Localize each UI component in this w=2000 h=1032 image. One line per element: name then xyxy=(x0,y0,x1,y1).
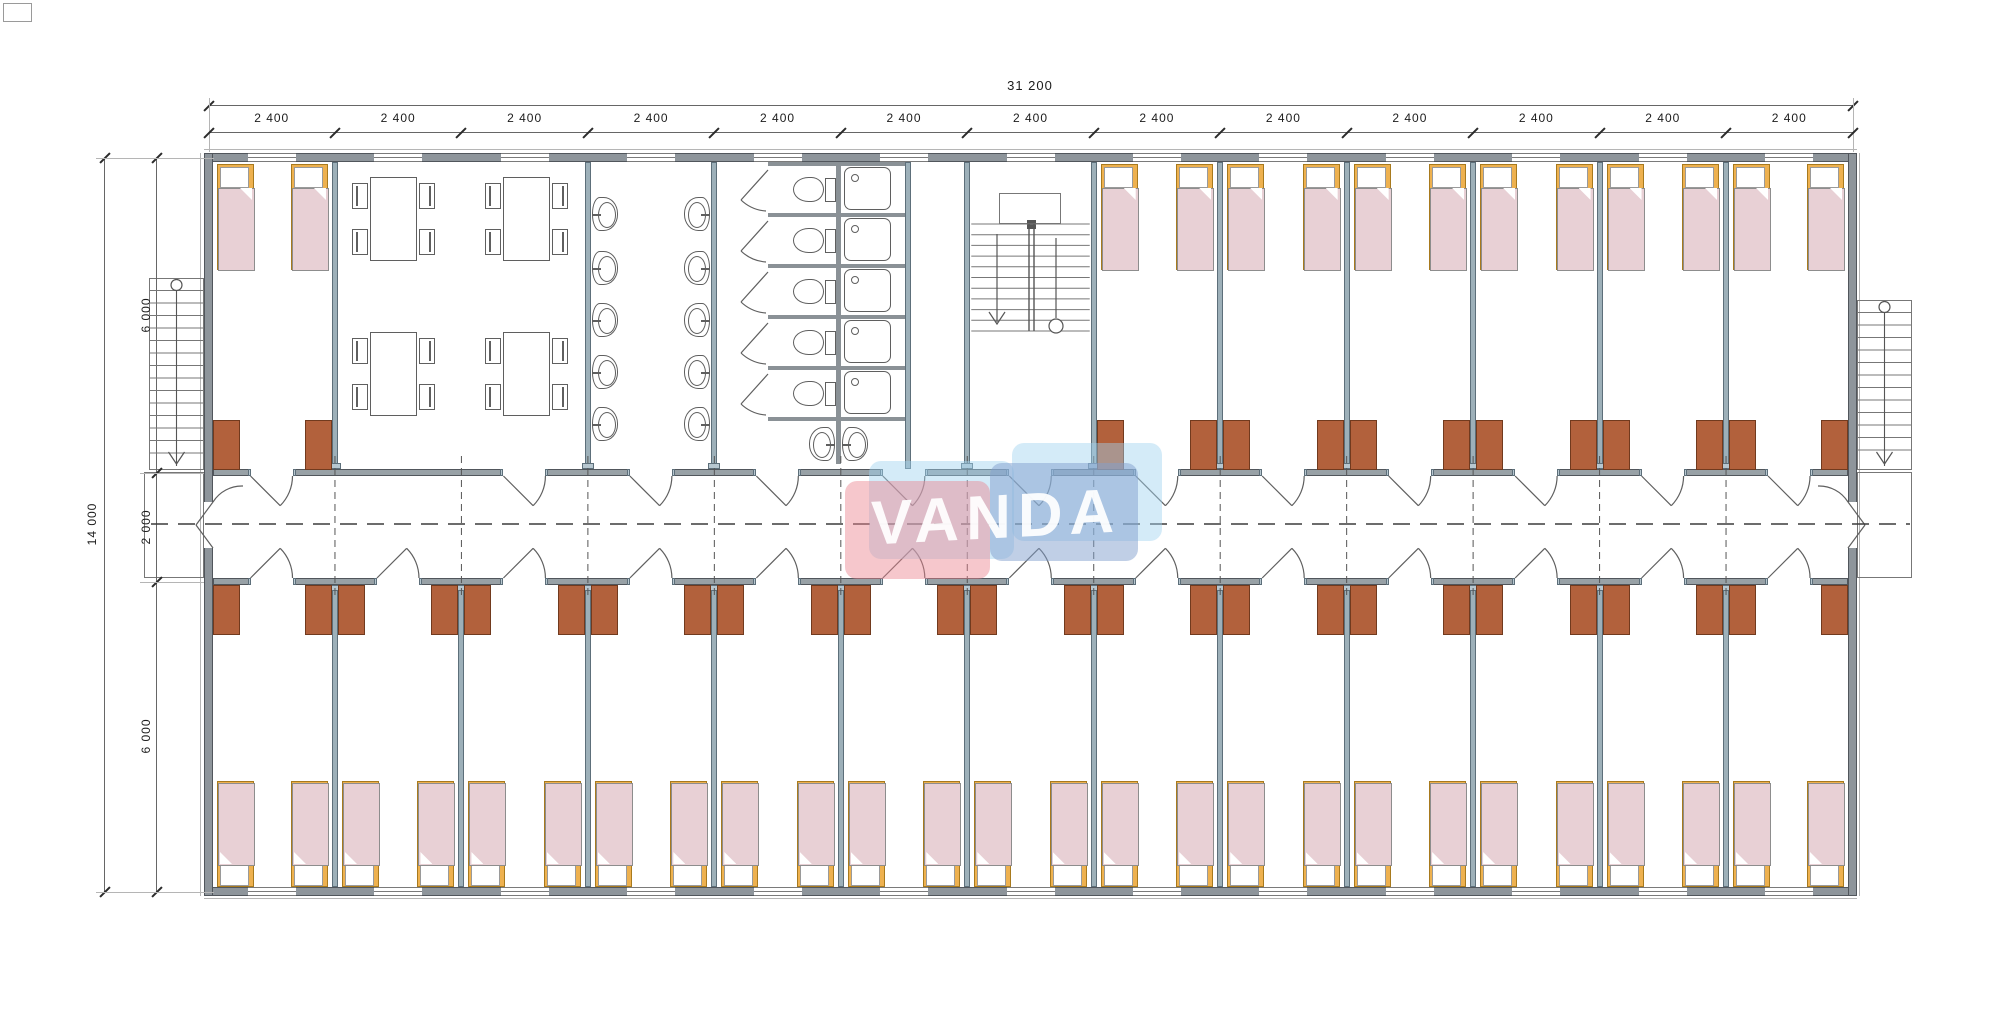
bed-mattress xyxy=(343,783,380,866)
dim-ext-line xyxy=(96,892,214,893)
shower-drain xyxy=(851,327,859,335)
external-landing-left xyxy=(144,472,204,578)
dining-chair xyxy=(419,183,435,209)
door-jamb-cap xyxy=(672,469,675,476)
window-glazing-line xyxy=(1386,157,1434,158)
door-jamb-cap xyxy=(248,578,251,585)
window-glazing-line xyxy=(501,891,549,892)
external-stair-right-outline xyxy=(1857,300,1912,470)
basin xyxy=(842,427,868,461)
basin-tap xyxy=(701,214,710,216)
dim-line-left-total xyxy=(104,158,105,892)
door-jamb-cap xyxy=(1810,469,1813,476)
bed-pillow xyxy=(1559,167,1588,188)
bed-pillow xyxy=(294,167,323,188)
chair-backrest xyxy=(562,341,564,361)
door-jamb-cap xyxy=(1639,578,1642,585)
dining-table xyxy=(370,177,417,261)
toilet-tank xyxy=(825,178,836,202)
external-stair-left-outline xyxy=(149,278,204,470)
dim-module-label: 2 400 xyxy=(1726,111,1852,125)
basin-tap xyxy=(701,372,710,374)
dim-ext-line xyxy=(1853,98,1854,152)
chair-backrest xyxy=(356,232,358,252)
bed xyxy=(848,781,885,887)
bed xyxy=(797,781,834,887)
door-opening xyxy=(630,469,672,476)
desk xyxy=(811,585,838,635)
shower-tray xyxy=(844,269,891,312)
bed-mattress xyxy=(418,783,455,866)
bed-pillow xyxy=(1230,167,1259,188)
window-glazing-line xyxy=(754,891,802,892)
partition-cap xyxy=(708,463,720,469)
door-jamb-cap xyxy=(293,469,296,476)
door-opening xyxy=(1515,578,1557,585)
desk xyxy=(1603,585,1630,635)
window-glazing-line xyxy=(1765,891,1813,892)
bed-pillow xyxy=(1483,865,1512,886)
shower-tray xyxy=(844,371,891,414)
bed-pillow xyxy=(294,865,323,886)
bed-mattress xyxy=(1355,188,1392,271)
bed-mattress xyxy=(1304,188,1341,271)
desk xyxy=(684,585,711,635)
bed-mattress xyxy=(722,783,759,866)
bed xyxy=(1607,164,1644,270)
bed xyxy=(1429,164,1466,270)
dim-left-segment-label-2: 6 000 xyxy=(139,706,153,766)
bed xyxy=(1101,781,1138,887)
window-glazing-line xyxy=(1133,157,1181,158)
dim-module-label: 2 400 xyxy=(1600,111,1726,125)
basin xyxy=(684,303,710,337)
dim-module-label: 2 400 xyxy=(335,111,461,125)
bed-mattress xyxy=(218,783,255,866)
dim-left-segment-label-1: 2 000 xyxy=(139,497,153,557)
bed-mattress xyxy=(1557,188,1594,271)
desk xyxy=(591,585,618,635)
partition-top-band xyxy=(711,162,717,469)
bed xyxy=(670,781,707,887)
desk xyxy=(1729,420,1756,470)
window-glazing-line xyxy=(248,157,296,158)
bed-pillow xyxy=(1104,167,1133,188)
dim-module-label: 2 400 xyxy=(841,111,967,125)
window-glazing-line xyxy=(754,157,802,158)
bed-pillow xyxy=(1179,167,1208,188)
bed-pillow xyxy=(1559,865,1588,886)
bed xyxy=(291,164,328,270)
window-glazing-line xyxy=(501,157,549,158)
bed-mattress xyxy=(975,783,1012,866)
bed xyxy=(1807,164,1844,270)
bed-mattress xyxy=(1481,783,1518,866)
desk xyxy=(1696,585,1723,635)
bed-pillow xyxy=(1053,865,1082,886)
window-glazing-line xyxy=(627,157,675,158)
dim-line-left-segments xyxy=(156,158,157,892)
bed-mattress xyxy=(1557,783,1594,866)
bed-mattress xyxy=(1177,783,1214,866)
door-jamb-cap xyxy=(1006,578,1009,585)
window-glazing-line xyxy=(1386,891,1434,892)
bed xyxy=(721,781,758,887)
bed xyxy=(1050,781,1087,887)
door-jamb-cap xyxy=(1684,578,1687,585)
door-jamb-cap xyxy=(1431,578,1434,585)
basin-tap xyxy=(701,424,710,426)
toilet-tank xyxy=(825,280,836,304)
desk xyxy=(844,585,871,635)
bed-pillow xyxy=(1357,865,1386,886)
chair-backrest xyxy=(429,232,431,252)
door-opening xyxy=(1768,578,1810,585)
desk xyxy=(1821,585,1848,635)
basin xyxy=(592,251,618,285)
bed-pillow xyxy=(1432,865,1461,886)
bed-mattress xyxy=(469,783,506,866)
window-glazing-line xyxy=(1639,157,1687,158)
dining-chair xyxy=(552,384,568,410)
window-glazing-line xyxy=(374,891,422,892)
bed-mattress xyxy=(1683,783,1720,866)
door-opening xyxy=(1262,469,1304,476)
door-opening xyxy=(1262,578,1304,585)
toilet-tank xyxy=(825,229,836,253)
door-jamb-cap xyxy=(1259,469,1262,476)
bed-pillow xyxy=(673,865,702,886)
hairline-bottom xyxy=(204,898,1857,899)
dim-module-label: 2 400 xyxy=(461,111,587,125)
desk xyxy=(1476,420,1503,470)
desk xyxy=(1097,585,1124,635)
door-jamb-cap xyxy=(1386,469,1389,476)
basin xyxy=(592,197,618,231)
bed-mattress xyxy=(1102,188,1139,271)
door-jamb-cap xyxy=(1386,578,1389,585)
bed-pillow xyxy=(926,865,955,886)
chair-backrest xyxy=(429,387,431,407)
toilet-bowl xyxy=(793,177,824,202)
chair-backrest xyxy=(489,232,491,252)
door-opening xyxy=(1009,578,1051,585)
door-jamb-cap xyxy=(1512,578,1515,585)
bed xyxy=(1354,781,1391,887)
chair-backrest xyxy=(562,186,564,206)
desk xyxy=(937,585,964,635)
door-opening xyxy=(1515,469,1557,476)
bed xyxy=(1807,781,1844,887)
door-jamb-cap xyxy=(545,578,548,585)
bed xyxy=(1682,781,1719,887)
bed-mattress xyxy=(1304,783,1341,866)
bed-mattress xyxy=(1355,783,1392,866)
bed-pillow xyxy=(220,865,249,886)
door-opening xyxy=(630,578,672,585)
door-jamb-cap xyxy=(1684,469,1687,476)
desk xyxy=(1223,420,1250,470)
bed-pillow xyxy=(1610,865,1639,886)
door-jamb-cap xyxy=(1133,578,1136,585)
dining-table xyxy=(503,332,550,416)
chair-backrest xyxy=(562,387,564,407)
bed-mattress xyxy=(849,783,886,866)
bed-mattress xyxy=(924,783,961,866)
bed-pillow xyxy=(1610,167,1639,188)
bed xyxy=(1176,164,1213,270)
toilet-bowl xyxy=(793,330,824,355)
dining-chair xyxy=(485,183,501,209)
bed-mattress xyxy=(596,783,633,866)
basin-tap xyxy=(592,424,601,426)
dining-chair xyxy=(352,229,368,255)
stall-back-wall xyxy=(836,162,841,462)
bed-pillow xyxy=(1104,865,1133,886)
door-jamb-cap xyxy=(672,578,675,585)
bed xyxy=(544,781,581,887)
door-jamb-cap xyxy=(1810,578,1813,585)
bed xyxy=(1682,164,1719,270)
bed-mattress xyxy=(1734,188,1771,271)
dim-line-top-modules xyxy=(209,132,1853,133)
door-jamb-cap xyxy=(1557,469,1560,476)
end-door-opening xyxy=(204,502,213,548)
door-opening xyxy=(377,578,419,585)
stair-newel xyxy=(1027,220,1036,229)
bed xyxy=(1480,781,1517,887)
window-glazing-line xyxy=(1512,891,1560,892)
sanitary-side-wall xyxy=(905,162,911,469)
door-opening xyxy=(1642,578,1684,585)
door-jamb-cap xyxy=(1431,469,1434,476)
basin xyxy=(684,407,710,441)
desk xyxy=(1190,420,1217,470)
bed xyxy=(1354,164,1391,270)
door-jamb-cap xyxy=(1765,578,1768,585)
door-opening xyxy=(503,578,545,585)
basin-tap xyxy=(701,320,710,322)
desk xyxy=(970,585,997,635)
bed xyxy=(468,781,505,887)
bed-mattress xyxy=(1808,188,1845,271)
desk xyxy=(1821,420,1848,470)
desk xyxy=(305,420,332,470)
desk xyxy=(213,585,240,635)
dining-chair xyxy=(485,229,501,255)
basin xyxy=(809,427,835,461)
door-opening xyxy=(1389,469,1431,476)
floor-plan-canvas: 2 4002 4002 4002 4002 4002 4002 4002 400… xyxy=(0,0,2000,1032)
basin-tap xyxy=(826,444,835,446)
window-glazing-line xyxy=(880,157,928,158)
door-jamb-cap xyxy=(500,469,503,476)
dining-table xyxy=(503,177,550,261)
bed-mattress xyxy=(671,783,708,866)
bed-pillow xyxy=(547,865,576,886)
bed-pillow xyxy=(1306,865,1335,886)
bed xyxy=(1733,781,1770,887)
desk xyxy=(1350,420,1377,470)
dining-chair xyxy=(552,229,568,255)
bed xyxy=(1556,164,1593,270)
desk xyxy=(431,585,458,635)
shower-drain xyxy=(851,276,859,284)
basin-tap xyxy=(592,214,601,216)
bed-pillow xyxy=(1432,167,1461,188)
desk xyxy=(1443,585,1470,635)
dining-chair xyxy=(552,183,568,209)
bed xyxy=(1429,781,1466,887)
desk xyxy=(1570,585,1597,635)
dim-module-label: 2 400 xyxy=(1094,111,1220,125)
chair-backrest xyxy=(356,341,358,361)
basin xyxy=(592,355,618,389)
bed-pillow xyxy=(471,865,500,886)
basin-tap xyxy=(701,268,710,270)
desk xyxy=(305,585,332,635)
dim-module-label: 2 400 xyxy=(714,111,840,125)
bed xyxy=(291,781,328,887)
bed-mattress xyxy=(1734,783,1771,866)
toilet-bowl xyxy=(793,279,824,304)
bed xyxy=(217,781,254,887)
bed-pillow xyxy=(1306,167,1335,188)
door-jamb-cap xyxy=(627,469,630,476)
desk xyxy=(338,585,365,635)
bed xyxy=(1176,781,1213,887)
door-jamb-cap xyxy=(1304,578,1307,585)
dim-ext-line xyxy=(96,158,214,159)
basin-tap xyxy=(842,444,851,446)
shower-tray xyxy=(844,167,891,210)
door-jamb-cap xyxy=(798,469,801,476)
toilet-tank xyxy=(825,382,836,406)
bed-pillow xyxy=(598,865,627,886)
desk xyxy=(1317,585,1344,635)
bed-mattress xyxy=(1228,188,1265,271)
partition-cap xyxy=(582,463,594,469)
bed-pillow xyxy=(1736,167,1765,188)
bed xyxy=(1227,781,1264,887)
bed xyxy=(1556,781,1593,887)
desk xyxy=(1476,585,1503,635)
window-glazing-line xyxy=(1259,157,1307,158)
window-glazing-line xyxy=(1007,891,1055,892)
bed xyxy=(595,781,632,887)
door-jamb-cap xyxy=(1051,578,1054,585)
bed-mattress xyxy=(545,783,582,866)
end-door-opening xyxy=(1848,502,1857,548)
bed-mattress xyxy=(1051,783,1088,866)
shower-drain xyxy=(851,378,859,386)
door-opening xyxy=(756,469,798,476)
door-jamb-cap xyxy=(1557,578,1560,585)
chair-backrest xyxy=(489,186,491,206)
toilet-tank xyxy=(825,331,836,355)
door-opening xyxy=(251,578,293,585)
window-glazing-line xyxy=(627,891,675,892)
partition-top-band xyxy=(964,162,970,469)
desk xyxy=(1223,585,1250,635)
door-jamb-cap xyxy=(753,469,756,476)
bed-mattress xyxy=(1481,188,1518,271)
bed-mattress xyxy=(1430,188,1467,271)
door-opening xyxy=(1136,578,1178,585)
dim-module-label: 2 400 xyxy=(1220,111,1346,125)
partition-top-band xyxy=(332,162,338,469)
bed-pillow xyxy=(1483,167,1512,188)
stall-back-wall xyxy=(836,421,841,464)
basin xyxy=(684,251,710,285)
chair-backrest xyxy=(356,186,358,206)
bed xyxy=(1733,164,1770,270)
bed xyxy=(923,781,960,887)
door-jamb-cap xyxy=(1259,578,1262,585)
bed xyxy=(1227,164,1264,270)
chair-backrest xyxy=(562,232,564,252)
basin-tap xyxy=(592,320,601,322)
basin xyxy=(684,355,710,389)
bed xyxy=(974,781,1011,887)
door-opening xyxy=(1642,469,1684,476)
external-landing-right xyxy=(1857,472,1912,578)
dim-total-height-label: 14 000 xyxy=(85,492,99,556)
door-opening xyxy=(251,469,293,476)
door-opening xyxy=(756,578,798,585)
dim-left-segment-label-0: 6 000 xyxy=(139,285,153,345)
chair-backrest xyxy=(429,186,431,206)
window-glazing-line xyxy=(248,891,296,892)
bed-mattress xyxy=(1683,188,1720,271)
basin xyxy=(592,407,618,441)
bed-pillow xyxy=(1179,865,1208,886)
window-glazing-line xyxy=(374,157,422,158)
bed-mattress xyxy=(1608,783,1645,866)
desk xyxy=(1064,585,1091,635)
shower-tray xyxy=(844,218,891,261)
door-jamb-cap xyxy=(1304,469,1307,476)
dining-chair xyxy=(485,384,501,410)
dining-chair xyxy=(419,384,435,410)
bed-pillow xyxy=(800,865,829,886)
shower-tray xyxy=(844,320,891,363)
basin-tap xyxy=(592,268,601,270)
dim-ext-line xyxy=(209,98,210,152)
bed-mattress xyxy=(292,783,329,866)
door-jamb-cap xyxy=(1639,469,1642,476)
door-opening xyxy=(1389,578,1431,585)
dining-chair xyxy=(352,384,368,410)
bed-pillow xyxy=(1230,865,1259,886)
door-opening xyxy=(503,469,545,476)
hairline-top xyxy=(204,149,1857,150)
desk xyxy=(1696,420,1723,470)
chair-backrest xyxy=(489,341,491,361)
chair-backrest xyxy=(429,341,431,361)
dining-chair xyxy=(352,338,368,364)
bed-mattress xyxy=(1608,188,1645,271)
window-glazing-line xyxy=(1765,157,1813,158)
bed-mattress xyxy=(218,188,255,271)
door-jamb-cap xyxy=(880,578,883,585)
window-glazing-line xyxy=(880,891,928,892)
dim-module-label: 2 400 xyxy=(209,111,335,125)
desk xyxy=(1570,420,1597,470)
dining-chair xyxy=(419,229,435,255)
dim-line-top-total xyxy=(209,105,1853,106)
desk xyxy=(1350,585,1377,635)
